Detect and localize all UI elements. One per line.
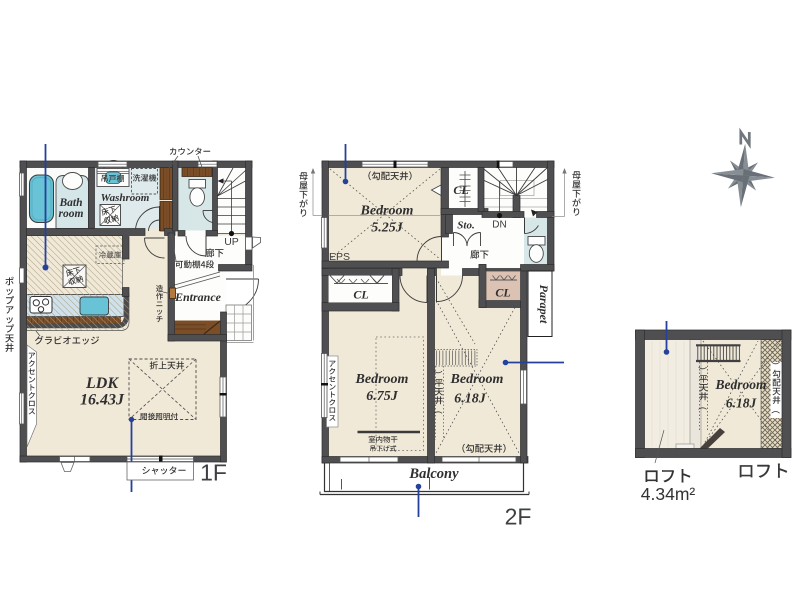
svg-text:CL: CL [453,183,468,197]
svg-text:Bedroom: Bedroom [714,377,766,392]
svg-text:Bedroom: Bedroom [355,372,409,387]
svg-text:4.34m²: 4.34m² [641,484,696,504]
svg-text:5.25J: 5.25J [371,221,404,236]
svg-text:Parapet: Parapet [537,285,551,324]
svg-text:16.43J: 16.43J [80,392,125,409]
svg-text:LDK: LDK [85,375,119,392]
svg-text:CL: CL [495,286,510,300]
svg-text:room: room [59,208,84,220]
svg-text:Entrance: Entrance [174,290,222,304]
svg-text:UP: UP [224,236,239,248]
svg-text:EPS: EPS [329,251,350,263]
svg-text:DN: DN [492,220,506,231]
svg-text:2F: 2F [505,504,532,530]
svg-text:Balcony: Balcony [408,466,459,482]
svg-text:1F: 1F [200,460,227,486]
svg-text:Washroom: Washroom [101,192,150,204]
svg-text:6.18J: 6.18J [726,396,758,411]
svg-text:Bedroom: Bedroom [450,372,504,387]
svg-text:Sto.: Sto. [457,220,474,232]
svg-text:Bedroom: Bedroom [360,204,414,219]
svg-text:CL: CL [353,288,368,302]
svg-text:6.75J: 6.75J [366,389,399,404]
svg-text:6.18J: 6.18J [454,392,487,407]
